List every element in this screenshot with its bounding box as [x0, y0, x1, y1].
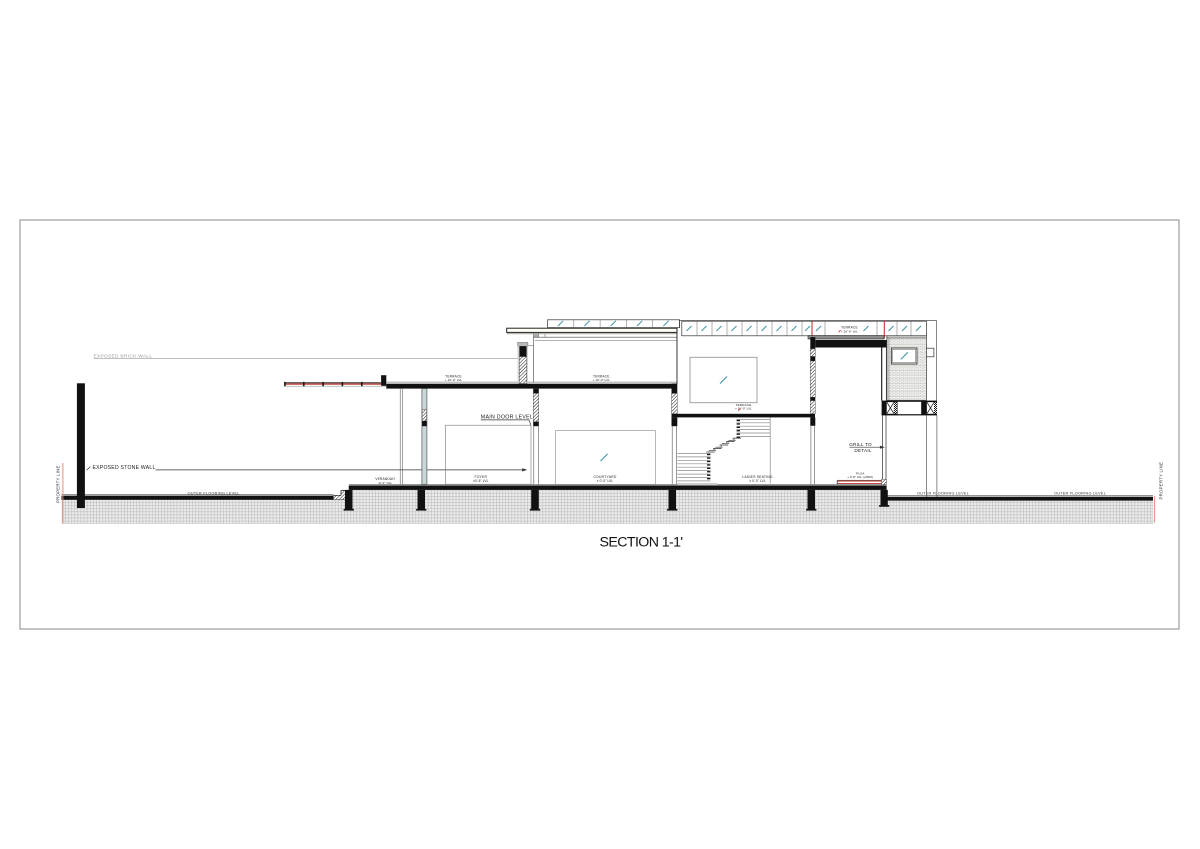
svg-text:±0'-6" LVL: ±0'-6" LVL [473, 479, 489, 483]
svg-text:13: 13 [726, 440, 729, 444]
svg-text:OUTER FLOORING LEVEL: OUTER FLOORING LEVEL [917, 492, 969, 496]
svg-text:DETAIL: DETAIL [854, 448, 871, 453]
svg-text:+ 0'-8" LVL (+650X): + 0'-8" LVL (+650X) [847, 475, 873, 479]
svg-text:11: 11 [713, 447, 716, 451]
svg-text:± 0'-0" LVL: ± 0'-0" LVL [749, 479, 766, 483]
svg-text:+ 10'-0" LVL: + 10'-0" LVL [735, 407, 752, 411]
svg-text:GRILL TO: GRILL TO [849, 442, 872, 447]
svg-text:-0'-2" LVL: -0'-2" LVL [378, 481, 393, 485]
svg-text:OUTER FLOORING LEVEL: OUTER FLOORING LEVEL [188, 491, 240, 495]
svg-text:PROPERTY LINE: PROPERTY LINE [1159, 462, 1164, 500]
svg-text:14: 14 [732, 437, 735, 441]
svg-text:PROPERTY LINE: PROPERTY LINE [56, 465, 61, 503]
svg-text:± 0'-0" LVL: ± 0'-0" LVL [597, 479, 614, 483]
svg-text:OUTER FLOORING LEVEL: OUTER FLOORING LEVEL [1054, 492, 1106, 496]
svg-text:+ 20'-0" LVL: + 20'-0" LVL [841, 330, 859, 334]
svg-text:SECTION 1-1': SECTION 1-1' [600, 534, 683, 550]
svg-text:12: 12 [719, 444, 722, 448]
svg-text:+ 10'-0" LVL: + 10'-0" LVL [593, 378, 611, 382]
svg-text:+ 10'-0" LVL: + 10'-0" LVL [445, 378, 463, 382]
svg-text:EXPOSED STONE WALL: EXPOSED STONE WALL [93, 465, 156, 471]
